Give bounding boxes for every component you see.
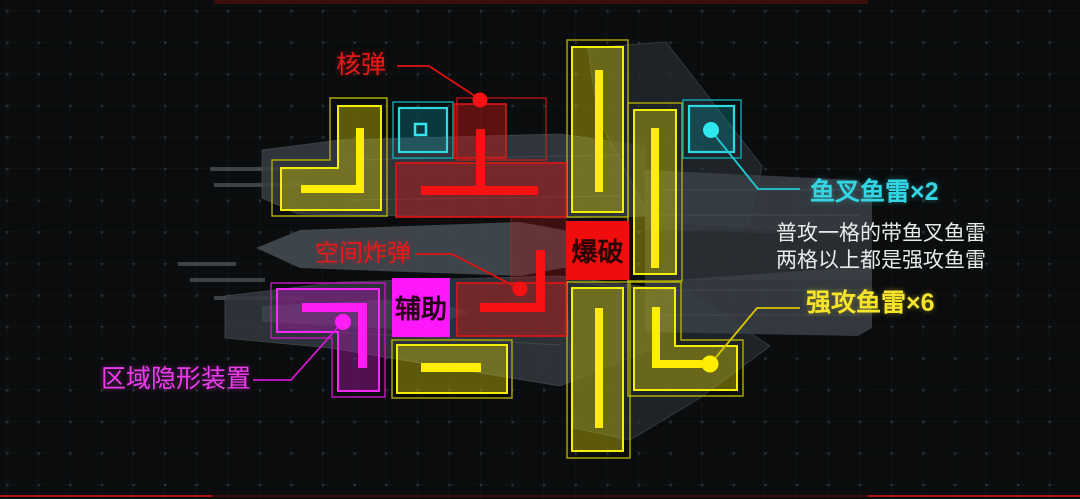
label-harpoon-torpedo: 鱼叉鱼雷×2 <box>810 179 939 207</box>
zone-torpedo-col1-bottom[interactable] <box>567 282 630 458</box>
callout-dot-space-bomb <box>513 282 528 297</box>
callout-dot-harpoon <box>703 122 719 138</box>
label-strong-torpedo: 强攻鱼雷×6 <box>806 290 935 318</box>
callout-dot-strong-torpedo <box>702 356 719 373</box>
badge-auxiliary[interactable]: 辅助 <box>392 278 450 337</box>
bar-icon <box>595 308 603 428</box>
zone-torpedo-strong-L[interactable] <box>628 282 743 396</box>
note-line-1: 普攻一格的带鱼叉鱼雷 <box>776 222 986 245</box>
ship-loadout-diagram: 辅助 爆破 核弹 空间炸弹 鱼叉鱼雷×2 普攻一格的带鱼叉鱼雷 两格以上都是强攻… <box>0 0 1080 499</box>
callout-dot-nuke <box>473 93 488 108</box>
bar-icon <box>421 363 481 372</box>
zone-torpedo-col1-top[interactable] <box>567 40 628 217</box>
note-line-2: 两格以上都是强攻鱼雷 <box>776 249 986 272</box>
zone-nuke[interactable] <box>454 98 546 160</box>
callout-dot-area-cloak <box>335 314 351 330</box>
zone-torpedo-col2-top[interactable] <box>628 103 682 281</box>
label-area-cloak: 区域隐形装置 <box>101 366 251 394</box>
zone-torpedo-left[interactable] <box>272 98 387 216</box>
bar-icon <box>651 128 659 268</box>
callout-line-nuke <box>397 66 478 98</box>
label-nuke: 核弹 <box>336 52 386 80</box>
label-space-bomb: 空间炸弹 <box>315 241 411 267</box>
callout-line-area-cloak <box>253 325 340 380</box>
bar-icon <box>595 70 603 192</box>
badge-blast[interactable]: 爆破 <box>566 221 629 280</box>
zone-harpoon-left[interactable] <box>393 102 453 158</box>
zone-torpedo-bottom-left[interactable] <box>392 340 512 398</box>
